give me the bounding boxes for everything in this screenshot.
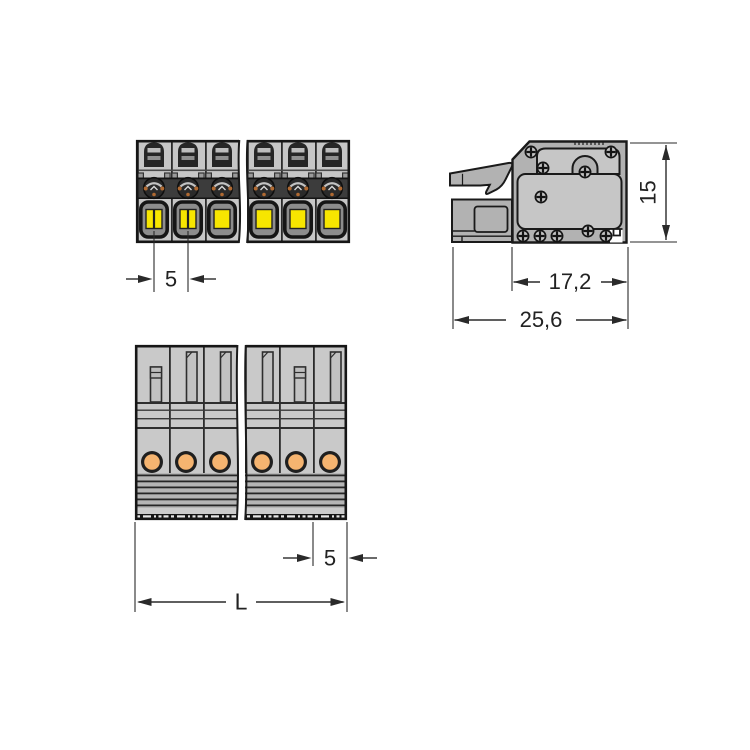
technical-drawing-canvas: 5 15 [0, 0, 750, 750]
bottom-view-pole-group-right [245, 345, 347, 520]
circle-cross-icon [551, 230, 562, 241]
arrow-right-icon [612, 316, 627, 324]
dimension-bottom-length: L [137, 589, 345, 615]
arrow-down-icon [662, 225, 670, 240]
connector-drawing: 5 15 [0, 0, 750, 750]
break-line [239, 140, 241, 243]
circle-cross-icon [579, 166, 590, 177]
bottom-view: 5 L [135, 345, 377, 615]
release-lever [450, 163, 512, 194]
dimension-side-height: 15 [630, 143, 677, 242]
circle-cross-icon [535, 191, 546, 202]
circle-cross-icon [534, 230, 545, 241]
circle-cross-icon [605, 146, 616, 157]
arrow-left-icon [455, 316, 470, 324]
dim-label-front-pitch: 5 [165, 267, 177, 292]
circle-cross-icon [517, 230, 528, 241]
dimension-side-depth-total: 25,6 [455, 307, 627, 332]
dim-label-side-depth-total: 25,6 [520, 307, 563, 332]
circle-cross-icon [600, 230, 611, 241]
arrow-left-icon [514, 278, 529, 286]
arrow-left-icon [349, 554, 364, 562]
front-view: 5 [126, 140, 349, 292]
dimension-bottom-pitch: 5 [135, 522, 377, 612]
arrow-up-icon [662, 146, 670, 161]
arrow-right-icon [331, 598, 346, 606]
dim-label-side-height: 15 [636, 180, 661, 204]
dim-label-side-depth-housing: 17,2 [549, 269, 592, 294]
arrow-right-icon [612, 278, 627, 286]
front-view-pole-group-left [137, 140, 239, 243]
side-view: 15 17,2 25,6 [450, 142, 677, 333]
circle-cross-icon [582, 225, 593, 236]
bottom-view-pole-group-left [135, 345, 237, 520]
arrow-right-icon [138, 275, 153, 283]
arrow-left-icon [137, 598, 152, 606]
dim-label-bottom-length: L [235, 589, 248, 615]
circle-cross-icon [537, 162, 548, 173]
break-line [237, 345, 238, 520]
arrow-left-icon [190, 275, 205, 283]
arrow-right-icon [297, 554, 312, 562]
circle-cross-icon [525, 146, 536, 157]
housing-recess-lower [518, 174, 622, 229]
front-view-pole-group-right [247, 140, 349, 243]
break-line [245, 345, 246, 520]
dim-label-bottom-pitch: 5 [324, 546, 336, 571]
